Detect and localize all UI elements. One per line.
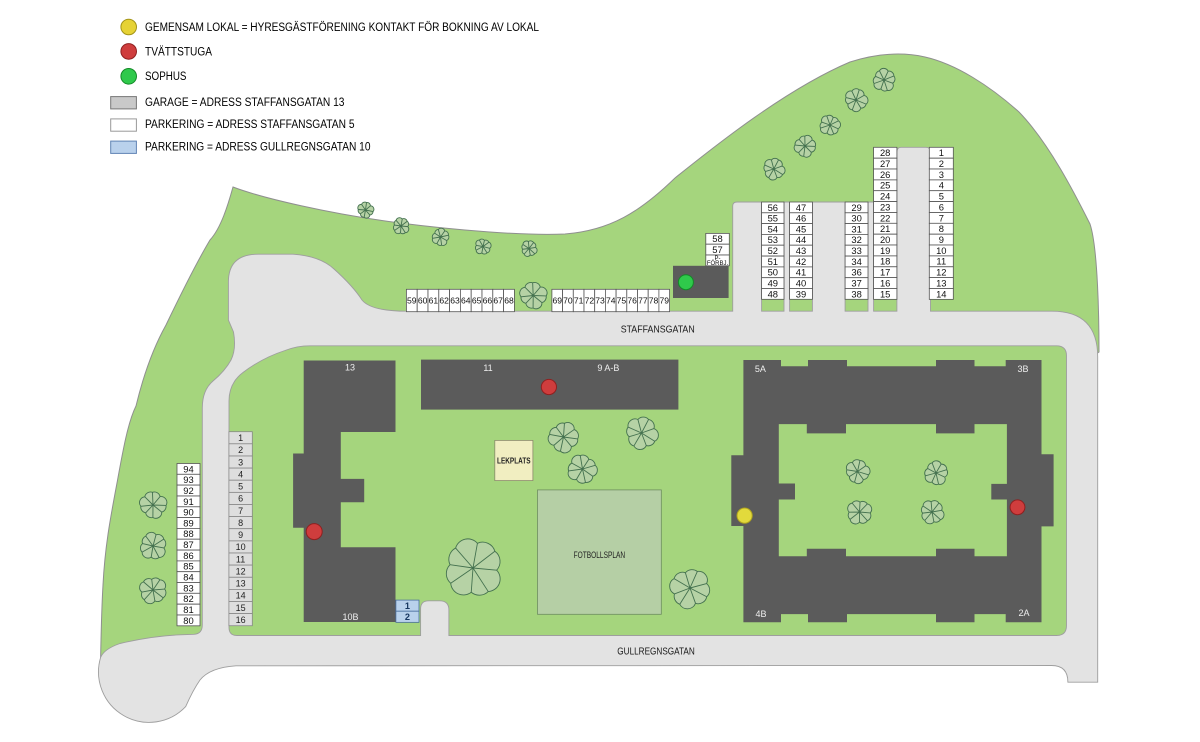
svg-text:9 A-B: 9 A-B	[597, 363, 619, 373]
svg-text:4B: 4B	[755, 609, 766, 619]
svg-text:44: 44	[796, 234, 806, 245]
svg-text:32: 32	[851, 234, 861, 245]
svg-text:79: 79	[659, 296, 669, 306]
svg-text:56: 56	[768, 202, 778, 213]
svg-text:86: 86	[183, 550, 193, 561]
svg-text:14: 14	[236, 591, 246, 601]
svg-text:82: 82	[183, 593, 193, 604]
svg-text:4: 4	[939, 180, 944, 191]
svg-text:89: 89	[183, 517, 193, 528]
svg-text:1: 1	[405, 601, 410, 611]
svg-text:3B: 3B	[1017, 364, 1028, 374]
svg-text:PARKERING = ADRESS GULLREGNSGA: PARKERING = ADRESS GULLREGNSGATAN 10	[145, 141, 371, 153]
svg-text:8: 8	[238, 518, 243, 528]
svg-text:15: 15	[236, 603, 246, 613]
svg-text:69: 69	[552, 296, 562, 306]
svg-text:FOTBOLLSPLAN: FOTBOLLSPLAN	[574, 550, 626, 560]
svg-text:2: 2	[405, 612, 410, 622]
svg-text:88: 88	[183, 528, 193, 539]
svg-text:23: 23	[880, 201, 890, 212]
svg-text:52: 52	[768, 245, 778, 256]
svg-text:26: 26	[880, 169, 890, 180]
svg-text:84: 84	[183, 572, 193, 583]
svg-text:51: 51	[768, 256, 778, 267]
svg-text:9: 9	[939, 234, 944, 245]
svg-text:10: 10	[236, 542, 246, 552]
svg-text:13: 13	[936, 277, 946, 288]
svg-text:34: 34	[851, 256, 861, 267]
svg-text:78: 78	[649, 296, 659, 306]
svg-text:STAFFANSGATAN: STAFFANSGATAN	[621, 324, 695, 336]
svg-text:90: 90	[183, 507, 193, 518]
svg-text:3: 3	[238, 457, 243, 467]
svg-text:64: 64	[461, 296, 471, 306]
svg-text:93: 93	[183, 474, 193, 485]
svg-text:37: 37	[851, 278, 861, 289]
svg-text:6: 6	[238, 494, 243, 504]
svg-text:13: 13	[236, 579, 246, 589]
svg-text:1: 1	[939, 147, 944, 158]
svg-text:62: 62	[439, 296, 449, 306]
svg-text:36: 36	[851, 267, 861, 278]
svg-text:27: 27	[880, 158, 890, 169]
svg-text:16: 16	[880, 277, 890, 288]
svg-text:PARKERING = ADRESS STAFFANSGAT: PARKERING = ADRESS STAFFANSGATAN 5	[145, 119, 355, 131]
svg-text:57: 57	[712, 244, 722, 255]
svg-text:91: 91	[183, 496, 193, 507]
svg-text:49: 49	[768, 278, 778, 289]
svg-text:18: 18	[880, 256, 890, 267]
svg-text:28: 28	[880, 147, 890, 158]
svg-text:50: 50	[768, 267, 778, 278]
svg-text:10B: 10B	[342, 612, 358, 622]
svg-text:41: 41	[796, 267, 806, 278]
svg-text:10: 10	[936, 245, 946, 256]
svg-text:73: 73	[595, 296, 605, 306]
svg-text:16: 16	[236, 615, 246, 625]
svg-text:4: 4	[238, 469, 243, 479]
svg-text:71: 71	[574, 296, 584, 306]
svg-text:92: 92	[183, 485, 193, 496]
svg-text:7: 7	[939, 212, 944, 223]
svg-text:19: 19	[880, 245, 890, 256]
svg-text:80: 80	[183, 615, 193, 626]
svg-text:83: 83	[183, 582, 193, 593]
svg-text:15: 15	[880, 288, 890, 299]
svg-text:LEKPLATS: LEKPLATS	[497, 456, 531, 465]
svg-text:24: 24	[880, 191, 890, 202]
svg-text:2: 2	[939, 158, 944, 169]
svg-text:39: 39	[796, 288, 806, 299]
svg-text:30: 30	[851, 213, 861, 224]
svg-text:9: 9	[238, 530, 243, 540]
svg-text:12: 12	[936, 267, 946, 278]
svg-text:54: 54	[768, 223, 778, 234]
svg-text:42: 42	[796, 256, 806, 267]
svg-text:5: 5	[939, 191, 944, 202]
svg-text:40: 40	[796, 278, 806, 289]
svg-text:31: 31	[851, 223, 861, 234]
svg-text:53: 53	[768, 234, 778, 245]
svg-text:33: 33	[851, 245, 861, 256]
svg-text:2A: 2A	[1018, 608, 1029, 618]
svg-text:46: 46	[796, 213, 806, 224]
svg-text:11: 11	[483, 363, 492, 373]
svg-text:12: 12	[236, 566, 246, 576]
svg-text:77: 77	[638, 296, 648, 306]
svg-text:76: 76	[627, 296, 637, 306]
svg-text:1: 1	[238, 433, 243, 443]
svg-text:11: 11	[936, 256, 946, 267]
svg-text:75: 75	[617, 296, 627, 306]
svg-text:94: 94	[183, 463, 193, 474]
svg-text:7: 7	[238, 506, 243, 516]
svg-text:87: 87	[183, 539, 193, 550]
svg-text:13: 13	[345, 363, 355, 373]
svg-text:5A: 5A	[755, 364, 766, 374]
svg-text:38: 38	[851, 288, 861, 299]
svg-text:25: 25	[880, 180, 890, 191]
svg-text:20: 20	[880, 234, 890, 245]
svg-text:GULLREGNSGATAN: GULLREGNSGATAN	[617, 646, 695, 658]
svg-text:2: 2	[238, 445, 243, 455]
svg-text:47: 47	[796, 202, 806, 213]
svg-text:48: 48	[768, 288, 778, 299]
svg-text:45: 45	[796, 223, 806, 234]
svg-text:58: 58	[712, 233, 722, 244]
svg-text:17: 17	[880, 267, 890, 278]
svg-text:68: 68	[504, 296, 514, 306]
svg-text:21: 21	[880, 223, 890, 234]
svg-text:6: 6	[939, 201, 944, 212]
svg-text:85: 85	[183, 561, 193, 572]
svg-text:11: 11	[236, 554, 245, 564]
svg-text:67: 67	[493, 296, 503, 306]
svg-text:70: 70	[563, 296, 573, 306]
svg-text:63: 63	[450, 296, 460, 306]
svg-text:5: 5	[238, 482, 243, 492]
svg-text:43: 43	[796, 245, 806, 256]
svg-text:3: 3	[939, 169, 944, 180]
svg-text:22: 22	[880, 212, 890, 223]
svg-text:65: 65	[472, 296, 482, 306]
svg-text:GARAGE = ADRESS STAFFANSGATAN: GARAGE = ADRESS STAFFANSGATAN 13	[145, 97, 345, 109]
svg-text:GEMENSAM LOKAL = HYRESGÄSTFÖRE: GEMENSAM LOKAL = HYRESGÄSTFÖRENING KONTA…	[145, 22, 540, 34]
svg-text:TVÄTTSTUGA: TVÄTTSTUGA	[145, 46, 212, 58]
svg-text:8: 8	[939, 223, 944, 234]
svg-text:SOPHUS: SOPHUS	[145, 71, 187, 83]
svg-text:29: 29	[851, 202, 861, 213]
svg-text:14: 14	[936, 288, 946, 299]
svg-text:60: 60	[418, 296, 428, 306]
svg-text:55: 55	[768, 213, 778, 224]
svg-text:61: 61	[429, 296, 439, 306]
svg-text:72: 72	[585, 296, 595, 306]
svg-text:59: 59	[407, 296, 417, 306]
svg-text:81: 81	[183, 604, 193, 615]
svg-text:66: 66	[483, 296, 493, 306]
svg-text:74: 74	[606, 296, 616, 306]
